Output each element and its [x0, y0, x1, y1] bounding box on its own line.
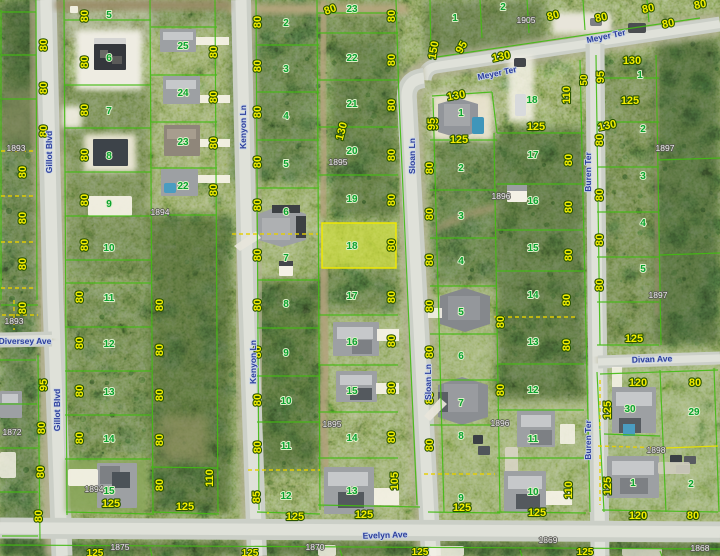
- svg-text:120: 120: [629, 377, 647, 389]
- svg-text:110: 110: [563, 481, 575, 499]
- svg-text:80: 80: [17, 302, 29, 314]
- svg-text:80: 80: [424, 300, 436, 312]
- svg-text:5: 5: [283, 159, 289, 170]
- svg-text:8: 8: [106, 151, 112, 162]
- svg-text:80: 80: [495, 384, 507, 396]
- svg-text:2: 2: [458, 163, 464, 174]
- svg-text:2: 2: [500, 2, 506, 13]
- svg-text:80: 80: [563, 154, 575, 166]
- svg-text:80: 80: [386, 291, 398, 303]
- svg-text:15: 15: [527, 243, 539, 254]
- svg-text:29: 29: [688, 407, 700, 418]
- svg-text:17: 17: [346, 291, 358, 302]
- svg-text:15: 15: [346, 386, 358, 397]
- svg-text:80: 80: [36, 422, 48, 434]
- svg-text:125: 125: [528, 507, 546, 519]
- svg-text:1868: 1868: [691, 543, 710, 553]
- svg-text:4: 4: [283, 111, 289, 122]
- svg-text:80: 80: [38, 39, 50, 51]
- svg-text:11: 11: [528, 434, 539, 445]
- svg-text:80: 80: [561, 339, 573, 351]
- svg-text:1870: 1870: [306, 542, 325, 552]
- svg-text:80: 80: [386, 10, 398, 22]
- svg-text:1895: 1895: [329, 157, 348, 167]
- svg-text:23: 23: [346, 4, 358, 15]
- svg-text:80: 80: [79, 104, 91, 116]
- svg-text:1: 1: [630, 478, 636, 489]
- svg-text:10: 10: [103, 243, 115, 254]
- svg-text:4: 4: [640, 218, 646, 229]
- svg-text:6: 6: [458, 351, 464, 362]
- svg-text:12: 12: [280, 491, 292, 502]
- svg-text:18: 18: [526, 95, 538, 106]
- svg-text:6: 6: [283, 207, 289, 218]
- svg-text:2: 2: [688, 479, 694, 490]
- svg-text:4: 4: [458, 256, 464, 267]
- svg-text:12: 12: [527, 385, 539, 396]
- svg-text:22: 22: [346, 53, 358, 64]
- svg-text:10: 10: [280, 396, 292, 407]
- svg-text:125: 125: [450, 134, 468, 146]
- svg-text:Gillot Blvd: Gillot Blvd: [52, 389, 62, 432]
- svg-text:80: 80: [74, 432, 86, 444]
- svg-text:9: 9: [283, 348, 289, 359]
- svg-text:1875: 1875: [111, 542, 130, 552]
- svg-text:1: 1: [637, 70, 643, 81]
- svg-text:18: 18: [346, 241, 358, 252]
- svg-text:7: 7: [106, 106, 112, 117]
- svg-text:Divan Ave: Divan Ave: [632, 353, 673, 364]
- svg-text:Kenyon Ln: Kenyon Ln: [248, 340, 258, 384]
- svg-text:125: 125: [286, 511, 304, 523]
- svg-text:130: 130: [623, 55, 641, 67]
- svg-text:16: 16: [527, 196, 539, 207]
- svg-text:8: 8: [458, 431, 464, 442]
- svg-text:80: 80: [154, 479, 166, 491]
- svg-text:1894: 1894: [85, 484, 104, 494]
- svg-text:110: 110: [561, 86, 573, 104]
- svg-text:12: 12: [103, 339, 115, 350]
- svg-text:80: 80: [17, 258, 29, 270]
- svg-text:80: 80: [386, 239, 398, 251]
- svg-text:80: 80: [386, 54, 398, 66]
- svg-text:125: 125: [527, 121, 545, 133]
- svg-text:Sloan Ln: Sloan Ln: [423, 364, 433, 400]
- svg-text:80: 80: [208, 184, 220, 196]
- svg-text:80: 80: [687, 510, 699, 522]
- svg-text:8: 8: [283, 299, 289, 310]
- svg-text:80: 80: [252, 156, 264, 168]
- svg-text:95: 95: [595, 71, 607, 83]
- svg-text:125: 125: [602, 477, 614, 495]
- svg-text:1893: 1893: [5, 316, 24, 326]
- svg-text:80: 80: [252, 60, 264, 72]
- svg-text:80: 80: [495, 316, 507, 328]
- svg-text:14: 14: [527, 290, 539, 301]
- svg-text:5: 5: [458, 307, 464, 318]
- svg-text:14: 14: [346, 433, 358, 444]
- svg-text:80: 80: [252, 16, 264, 28]
- svg-text:80: 80: [154, 344, 166, 356]
- svg-text:80: 80: [386, 335, 398, 347]
- svg-text:80: 80: [79, 194, 91, 206]
- svg-text:80: 80: [17, 212, 29, 224]
- svg-text:Diversey Ave: Diversey Ave: [0, 336, 52, 346]
- svg-text:80: 80: [79, 149, 91, 161]
- svg-text:6: 6: [106, 53, 112, 64]
- svg-text:Kenyon Ln: Kenyon Ln: [238, 105, 248, 149]
- svg-text:1896: 1896: [492, 191, 511, 201]
- svg-text:22: 22: [177, 181, 189, 192]
- svg-text:125: 125: [625, 333, 643, 345]
- svg-text:125: 125: [621, 95, 639, 107]
- svg-text:125: 125: [412, 547, 429, 556]
- svg-text:125: 125: [87, 548, 104, 556]
- svg-text:125: 125: [602, 401, 614, 419]
- svg-text:80: 80: [252, 249, 264, 261]
- svg-text:Gillot Blvd: Gillot Blvd: [44, 131, 54, 174]
- svg-text:80: 80: [252, 441, 264, 453]
- svg-text:80: 80: [661, 17, 675, 31]
- svg-text:80: 80: [38, 82, 50, 94]
- svg-text:95: 95: [426, 118, 438, 130]
- svg-text:125: 125: [355, 509, 373, 521]
- svg-text:125: 125: [577, 547, 594, 556]
- svg-text:80: 80: [689, 377, 701, 389]
- svg-text:80: 80: [594, 279, 606, 291]
- svg-text:80: 80: [74, 385, 86, 397]
- svg-text:80: 80: [424, 208, 436, 220]
- svg-text:80: 80: [424, 346, 436, 358]
- svg-text:80: 80: [386, 431, 398, 443]
- svg-text:80: 80: [252, 394, 264, 406]
- svg-text:110: 110: [204, 469, 216, 487]
- svg-text:120: 120: [629, 510, 647, 522]
- svg-text:9: 9: [458, 493, 464, 504]
- svg-text:80: 80: [594, 234, 606, 246]
- svg-text:80: 80: [33, 510, 45, 522]
- svg-text:17: 17: [527, 150, 539, 161]
- svg-text:1: 1: [458, 108, 464, 119]
- svg-text:95: 95: [38, 379, 50, 391]
- svg-text:1898: 1898: [647, 445, 666, 455]
- svg-text:24: 24: [177, 88, 189, 99]
- svg-text:Buren Ter: Buren Ter: [583, 152, 593, 192]
- svg-text:80: 80: [74, 291, 86, 303]
- svg-text:21: 21: [346, 99, 358, 110]
- svg-text:80: 80: [79, 239, 91, 251]
- svg-text:80: 80: [594, 189, 606, 201]
- svg-text:20: 20: [346, 146, 358, 157]
- svg-text:7: 7: [283, 253, 289, 264]
- svg-text:11: 11: [281, 441, 292, 452]
- svg-text:80: 80: [17, 166, 29, 178]
- svg-text:80: 80: [208, 46, 220, 58]
- svg-text:7: 7: [458, 398, 464, 409]
- svg-text:80: 80: [594, 11, 608, 25]
- svg-text:5: 5: [640, 264, 646, 275]
- svg-text:9: 9: [106, 199, 112, 210]
- svg-text:19: 19: [346, 194, 358, 205]
- svg-text:Sloan Ln: Sloan Ln: [407, 138, 417, 174]
- svg-text:80: 80: [208, 91, 220, 103]
- svg-text:25: 25: [177, 41, 189, 52]
- svg-text:13: 13: [527, 337, 539, 348]
- svg-text:1869: 1869: [539, 535, 558, 545]
- svg-text:1894: 1894: [151, 207, 170, 217]
- svg-text:80: 80: [386, 382, 398, 394]
- svg-text:1872: 1872: [3, 427, 22, 437]
- svg-text:80: 80: [154, 434, 166, 446]
- svg-text:1897: 1897: [656, 143, 675, 153]
- svg-text:80: 80: [252, 106, 264, 118]
- svg-text:80: 80: [208, 137, 220, 149]
- svg-text:80: 80: [563, 201, 575, 213]
- svg-text:2: 2: [640, 124, 646, 135]
- svg-text:80: 80: [386, 149, 398, 161]
- svg-text:Buren Ter: Buren Ter: [583, 420, 593, 460]
- svg-text:3: 3: [458, 211, 464, 222]
- svg-text:3: 3: [283, 64, 289, 75]
- svg-text:80: 80: [79, 56, 91, 68]
- svg-text:50: 50: [579, 74, 590, 86]
- svg-text:14: 14: [103, 434, 115, 445]
- svg-text:80: 80: [154, 299, 166, 311]
- svg-text:80: 80: [386, 194, 398, 206]
- svg-text:13: 13: [346, 486, 358, 497]
- svg-text:80: 80: [424, 162, 436, 174]
- svg-text:15: 15: [103, 486, 115, 497]
- svg-text:125: 125: [242, 548, 259, 556]
- svg-text:80: 80: [154, 389, 166, 401]
- svg-text:30: 30: [624, 404, 636, 415]
- svg-text:1893: 1893: [7, 143, 26, 153]
- svg-text:80: 80: [563, 249, 575, 261]
- svg-text:80: 80: [79, 10, 91, 22]
- svg-text:1905: 1905: [517, 15, 536, 25]
- svg-text:80: 80: [74, 337, 86, 349]
- svg-text:1: 1: [452, 13, 458, 24]
- svg-text:125: 125: [102, 498, 120, 510]
- svg-text:80: 80: [252, 199, 264, 211]
- svg-text:80: 80: [561, 294, 573, 306]
- svg-text:1895: 1895: [323, 419, 342, 429]
- svg-text:10: 10: [527, 487, 539, 498]
- svg-text:80: 80: [424, 439, 436, 451]
- svg-text:80: 80: [594, 134, 606, 146]
- svg-text:80: 80: [641, 2, 655, 16]
- svg-text:85: 85: [251, 491, 263, 503]
- svg-text:80: 80: [252, 299, 264, 311]
- svg-text:80: 80: [35, 466, 47, 478]
- svg-text:2: 2: [283, 18, 289, 29]
- svg-text:3: 3: [640, 171, 646, 182]
- svg-text:13: 13: [103, 387, 115, 398]
- svg-text:11: 11: [104, 293, 115, 304]
- svg-text:16: 16: [346, 337, 358, 348]
- svg-text:1897: 1897: [649, 290, 668, 300]
- svg-text:105: 105: [389, 472, 401, 490]
- svg-text:Evelyn Ave: Evelyn Ave: [362, 529, 407, 541]
- svg-text:80: 80: [424, 254, 436, 266]
- svg-text:23: 23: [177, 137, 189, 148]
- svg-text:80: 80: [386, 99, 398, 111]
- svg-text:5: 5: [106, 10, 112, 21]
- svg-text:125: 125: [176, 501, 194, 513]
- svg-text:1896: 1896: [491, 418, 510, 428]
